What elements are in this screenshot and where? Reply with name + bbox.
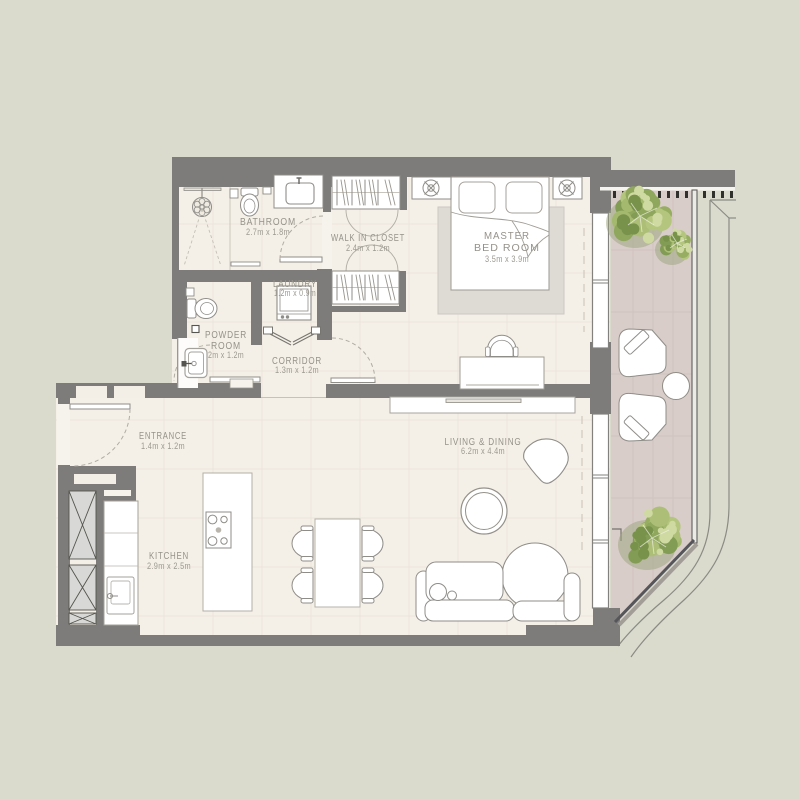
svg-text:1.4m x 1.2m: 1.4m x 1.2m bbox=[141, 441, 185, 451]
svg-text:2m x 1.2m: 2m x 1.2m bbox=[208, 350, 244, 360]
svg-text:1.3m x 1.2m: 1.3m x 1.2m bbox=[275, 365, 319, 375]
svg-text:6.2m x 4.4m: 6.2m x 4.4m bbox=[461, 446, 505, 456]
svg-text:3.5m x 3.9m: 3.5m x 3.9m bbox=[485, 254, 529, 264]
svg-text:MASTER: MASTER bbox=[484, 230, 530, 242]
svg-text:2.4m x 1.2m: 2.4m x 1.2m bbox=[346, 243, 390, 253]
svg-text:2.7m x 1.8m: 2.7m x 1.8m bbox=[246, 227, 290, 237]
svg-text:2.9m x 2.5m: 2.9m x 2.5m bbox=[147, 561, 191, 571]
svg-text:1.2m x 0.9m: 1.2m x 0.9m bbox=[274, 288, 316, 298]
svg-text:BED ROOM: BED ROOM bbox=[474, 242, 540, 254]
